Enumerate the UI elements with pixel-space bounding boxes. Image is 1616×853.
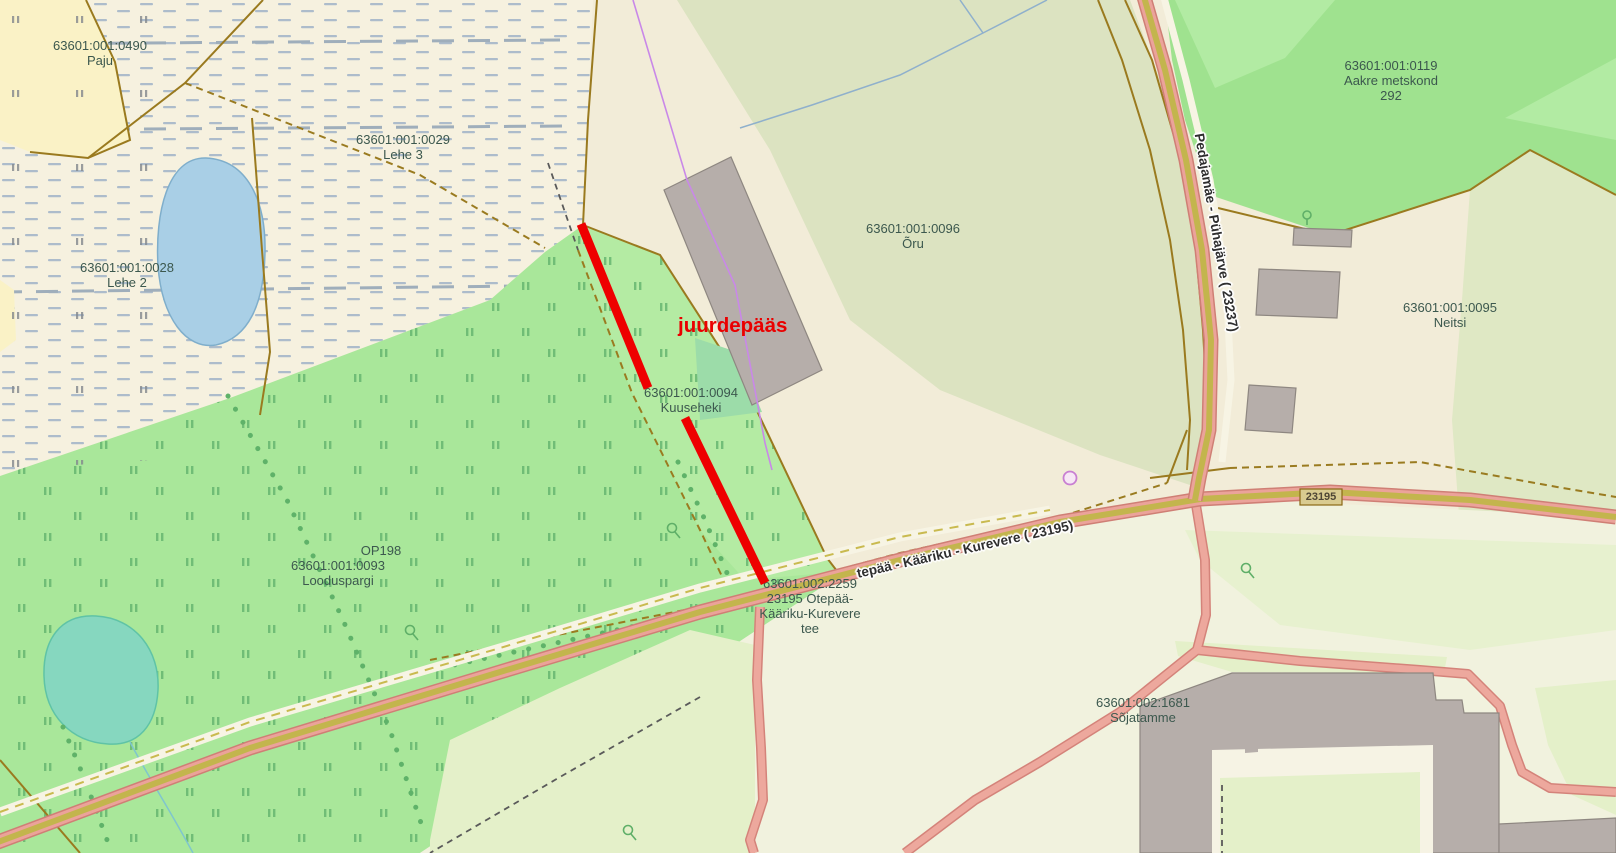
access-annotation-label: juurdepääs	[678, 314, 787, 338]
parcel-label-line: Kuuseheki	[644, 400, 738, 415]
parcel-label-0029[interactable]: 63601:001:0029Lehe 3	[356, 132, 450, 162]
parcel-label-line: Lehe 2	[80, 275, 174, 290]
parcel-label-line: Kääriku-Kurevere	[759, 606, 860, 621]
parcel-label-line: 63601:001:0093	[291, 558, 385, 573]
parcel-label-line: Aakre metskond	[1344, 73, 1438, 88]
parcel-label-line: 63601:001:0094	[644, 385, 738, 400]
parcel-label-line: tee	[759, 621, 860, 636]
parcel-label-line: 63601:002:2259	[759, 576, 860, 591]
parcel-label-0028[interactable]: 63601:001:0028Lehe 2	[80, 260, 174, 290]
parcel-label-line: 63601:001:0490	[53, 38, 147, 53]
road-shield-label: 23195	[1300, 489, 1342, 505]
parcel-label-line: Neitsi	[1403, 315, 1497, 330]
parcel-label-line: OP198	[361, 543, 401, 558]
parcel-label-line: 63601:001:0096	[866, 221, 960, 236]
parcel-label-0490[interactable]: 63601:001:0490Paju	[53, 38, 147, 68]
map-canvas[interactable]: tepää - Kääriku - Kurevere ( 23195) Peda…	[0, 0, 1616, 853]
labels-layer: tepää - Kääriku - Kurevere ( 23195) Peda…	[0, 0, 1616, 853]
parcel-label-line: 292	[1344, 88, 1438, 103]
parcel-label-0094[interactable]: 63601:001:0094Kuuseheki	[644, 385, 738, 415]
parcel-label-line: Lehe 3	[356, 147, 450, 162]
parcel-label-op198[interactable]: OP198	[361, 543, 401, 558]
parcel-label-line: Paju	[53, 53, 147, 68]
road-name-label-23237: Pedajamäe - Pühajärve ( 23237)	[1192, 132, 1242, 333]
parcel-label-0119[interactable]: 63601:001:0119Aakre metskond292	[1344, 58, 1438, 103]
parcel-label-line: 63601:001:0095	[1403, 300, 1497, 315]
parcel-label-line: Õru	[866, 236, 960, 251]
road-name-label-23195: tepää - Kääriku - Kurevere ( 23195)	[855, 518, 1074, 581]
parcel-label-1681[interactable]: 63601:002:1681Sõjatamme	[1096, 695, 1190, 725]
parcel-label-line: 63601:001:0028	[80, 260, 174, 275]
parcel-label-line: 23195 Otepää-	[759, 591, 860, 606]
parcel-label-line: 63601:002:1681	[1096, 695, 1190, 710]
parcel-label-line: Sõjatamme	[1096, 710, 1190, 725]
parcel-label-line: Looduspargi	[291, 573, 385, 588]
parcel-label-line: 63601:001:0119	[1344, 58, 1438, 73]
parcel-label-0095[interactable]: 63601:001:0095Neitsi	[1403, 300, 1497, 330]
parcel-label-0096[interactable]: 63601:001:0096Õru	[866, 221, 960, 251]
parcel-label-0093[interactable]: 63601:001:0093Looduspargi	[291, 558, 385, 588]
parcel-label-line: 63601:001:0029	[356, 132, 450, 147]
parcel-label-2259[interactable]: 63601:002:225923195 Otepää-Kääriku-Kurev…	[759, 576, 860, 636]
